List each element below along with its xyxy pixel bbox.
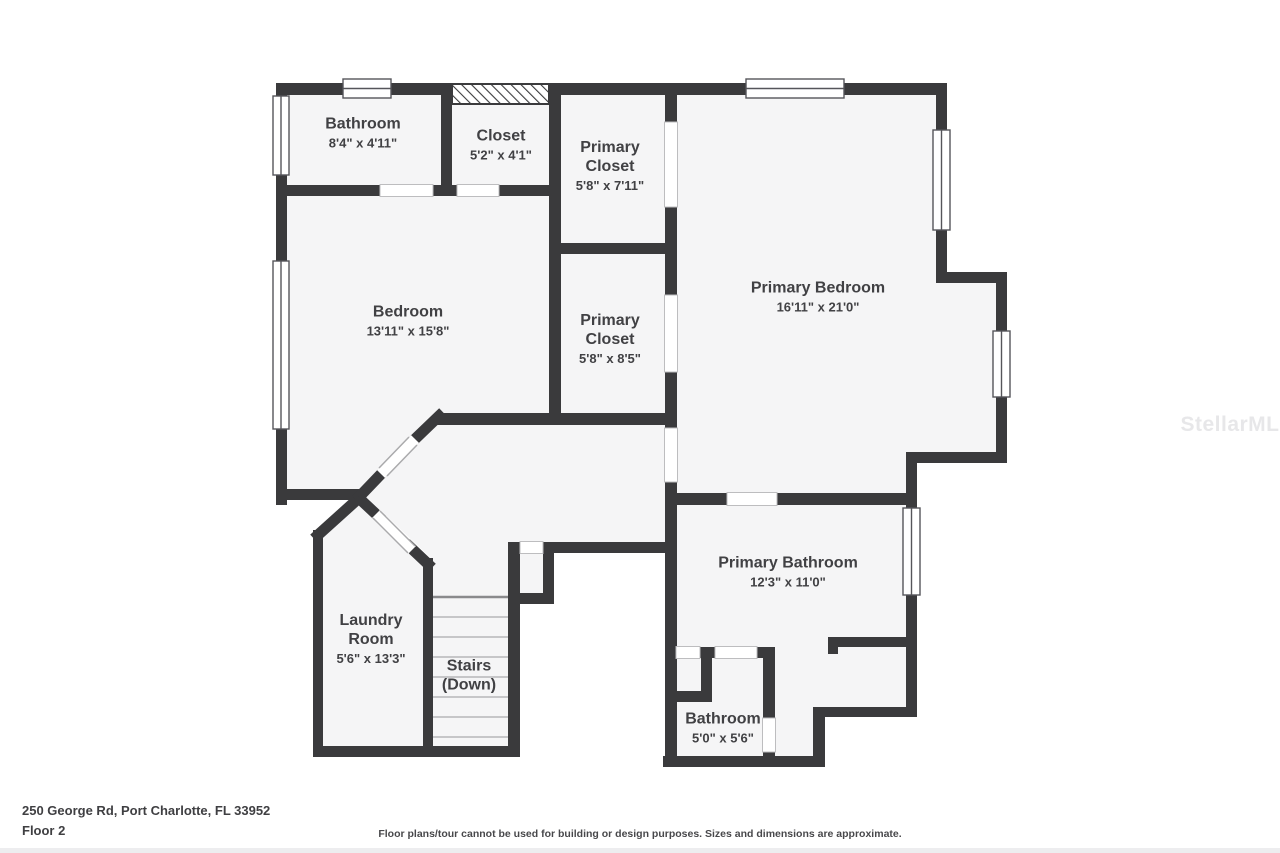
bottom-edge-strip — [0, 848, 1280, 853]
footer-disclaimer: Floor plans/tour cannot be used for buil… — [0, 828, 1280, 840]
floorplan-drawing — [0, 0, 1280, 853]
hatched-wall — [452, 84, 549, 104]
watermark-stellar-mls: StellarMLS — [1180, 413, 1280, 437]
floorplan-page: Bathroom 8'4" x 4'11" Closet 5'2" x 4'1"… — [0, 0, 1280, 853]
footer-address: 250 George Rd, Port Charlotte, FL 33952 — [22, 803, 270, 818]
